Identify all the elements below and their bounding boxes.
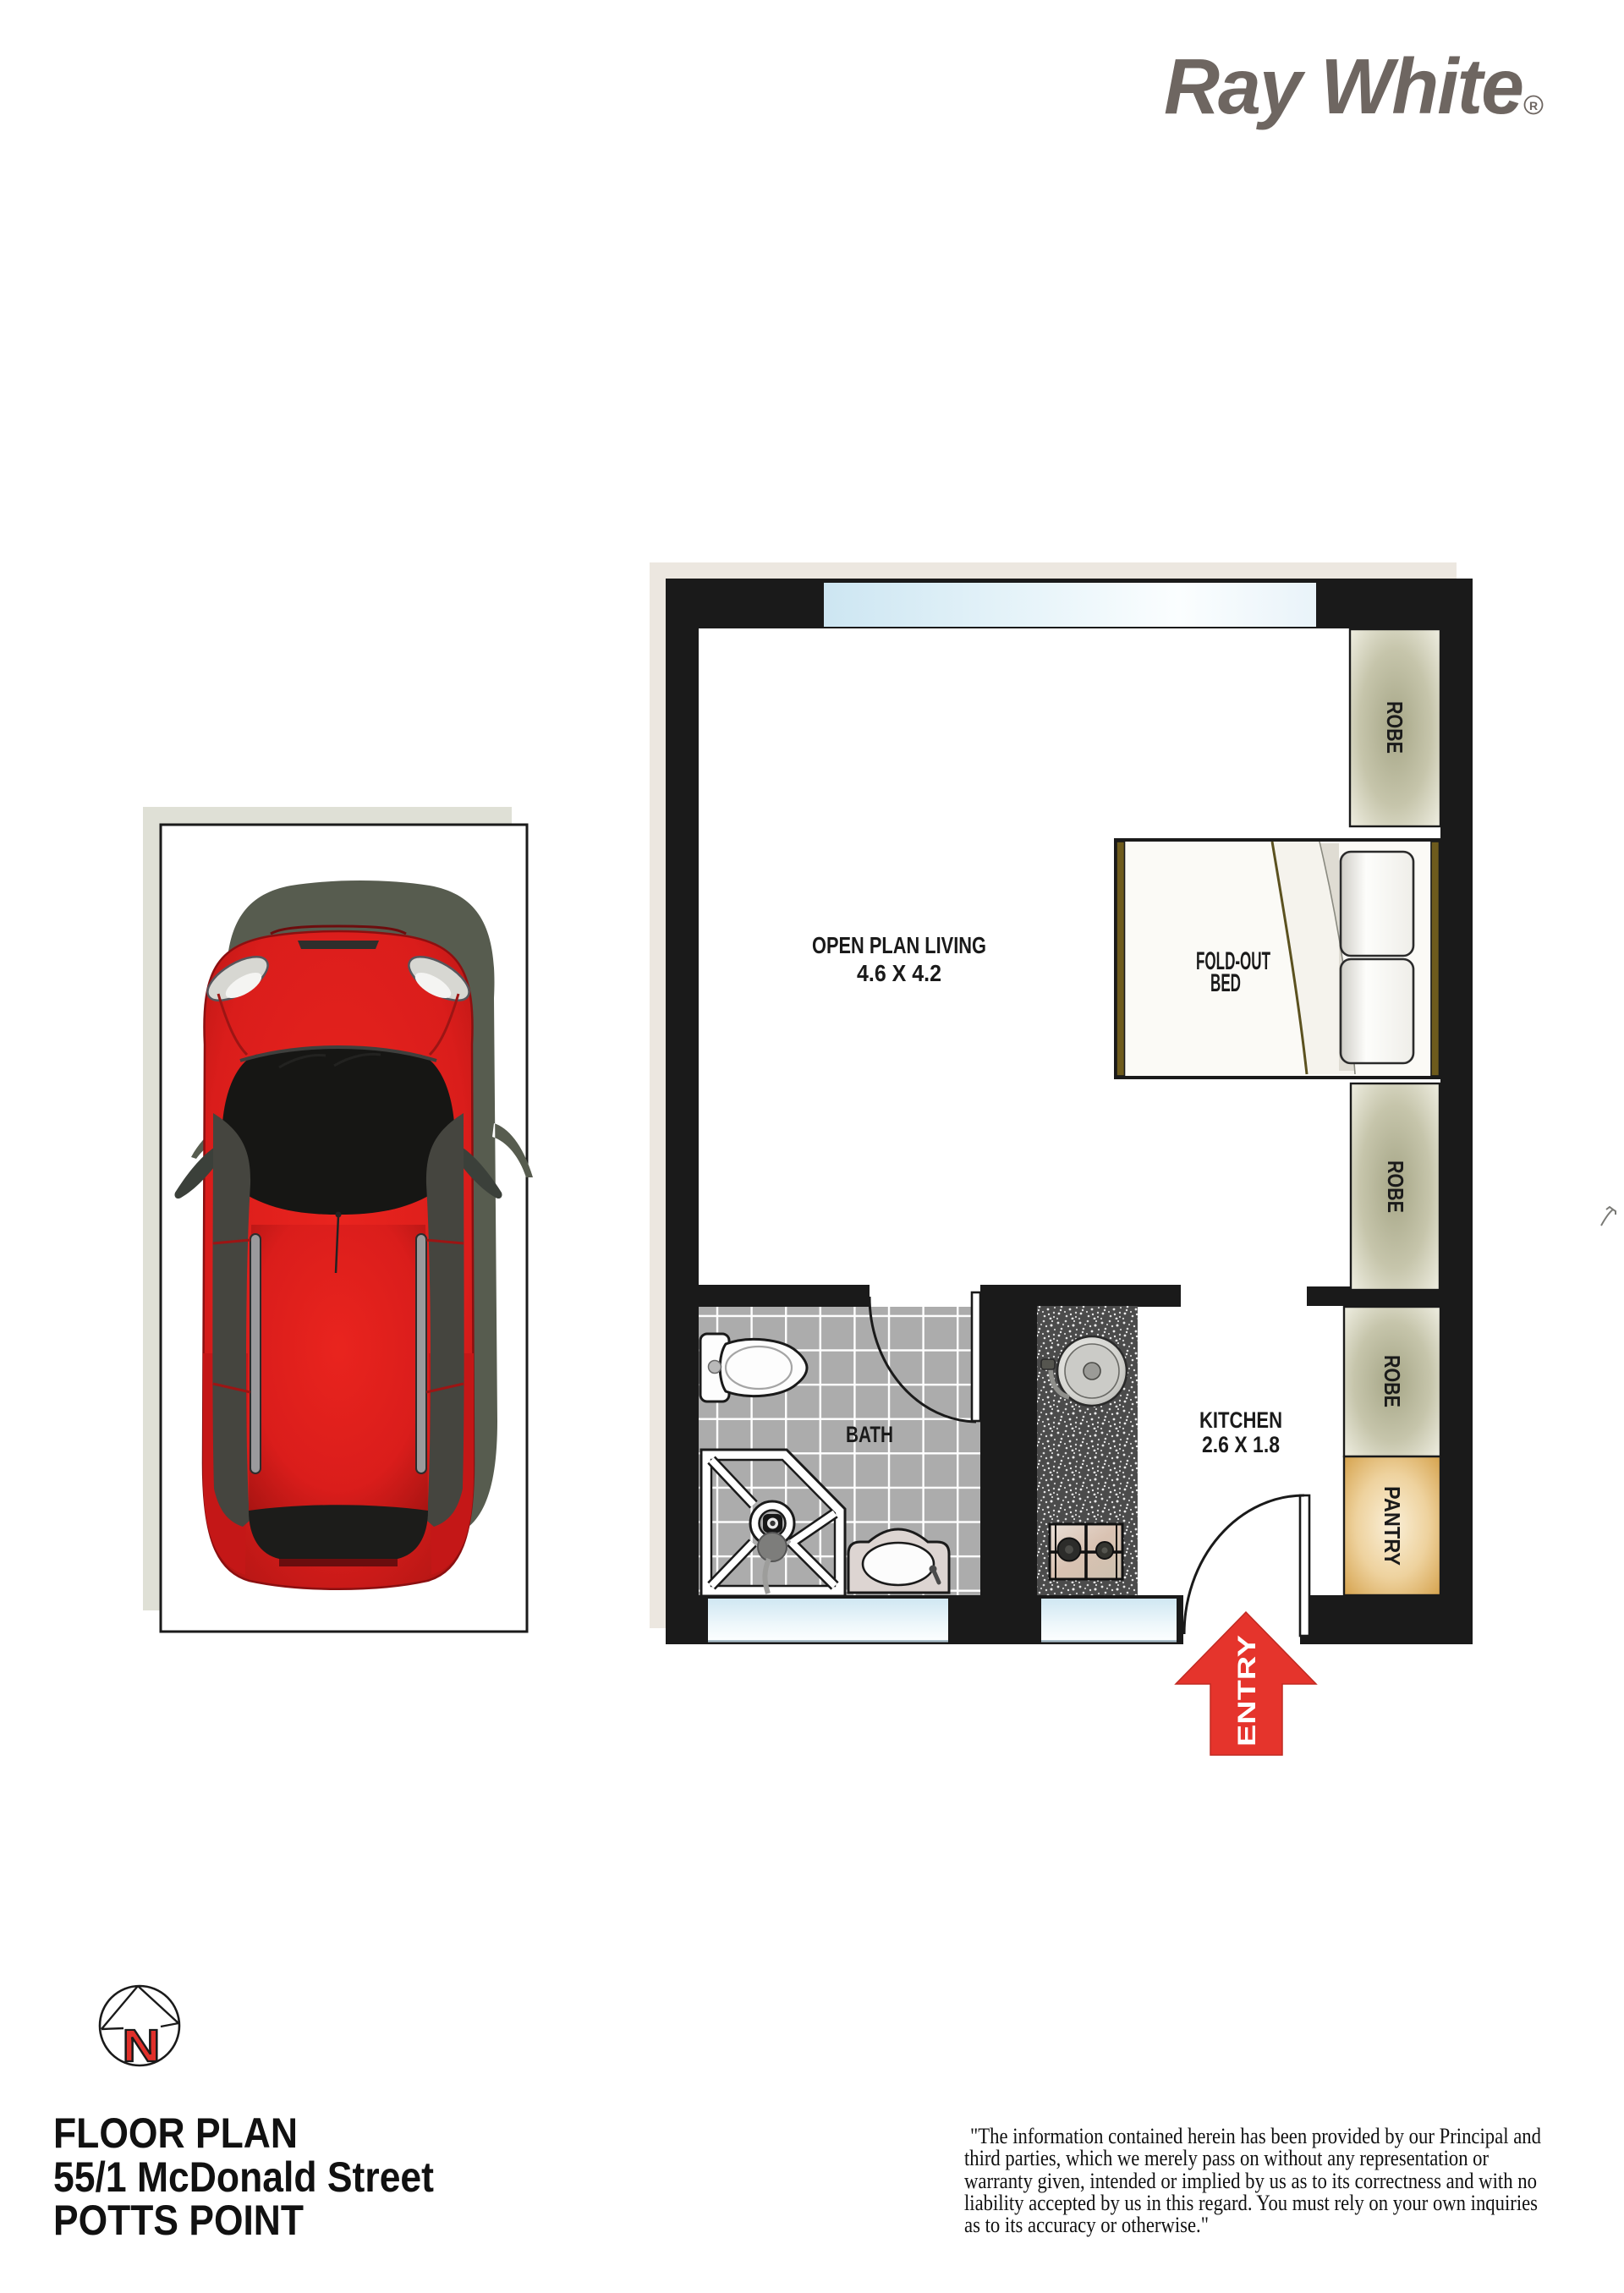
svg-text:ROBE: ROBE: [1382, 701, 1407, 754]
svg-text:2.6 X 1.8: 2.6 X 1.8: [1202, 1432, 1280, 1457]
svg-text:PANTRY: PANTRY: [1380, 1486, 1405, 1566]
svg-text:ROBE: ROBE: [1383, 1160, 1408, 1213]
svg-text:ENTRY: ENTRY: [1233, 1635, 1261, 1747]
svg-text:N: N: [123, 2021, 161, 2071]
svg-text:liability accepted by us in th: liability accepted by us in this regard.…: [964, 2191, 1538, 2215]
svg-text:POTTS POINT: POTTS POINT: [53, 2197, 304, 2244]
svg-text:BATH: BATH: [846, 1422, 893, 1447]
svg-text:4.6 X 4.2: 4.6 X 4.2: [857, 960, 941, 986]
svg-text:as to its accuracy or otherwis: as to its accuracy or otherwise.": [964, 2213, 1209, 2237]
svg-text:warranty given, intended or im: warranty given, intended or implied by u…: [964, 2169, 1537, 2193]
svg-text:third parties, which we merely: third parties, which we merely pass on w…: [964, 2146, 1489, 2170]
svg-text:BED: BED: [1210, 969, 1241, 997]
svg-text:KITCHEN: KITCHEN: [1199, 1407, 1282, 1433]
svg-text:Ray White: Ray White: [1164, 42, 1522, 130]
svg-text:55/1 McDonald Street: 55/1 McDonald Street: [53, 2153, 434, 2201]
svg-text:FLOOR PLAN: FLOOR PLAN: [53, 2109, 298, 2157]
svg-text:OPEN PLAN LIVING: OPEN PLAN LIVING: [812, 932, 986, 958]
svg-text:"The information contained her: "The information contained herein has be…: [970, 2124, 1541, 2148]
svg-text:R: R: [1529, 99, 1538, 112]
svg-text:ROBE: ROBE: [1380, 1355, 1405, 1407]
